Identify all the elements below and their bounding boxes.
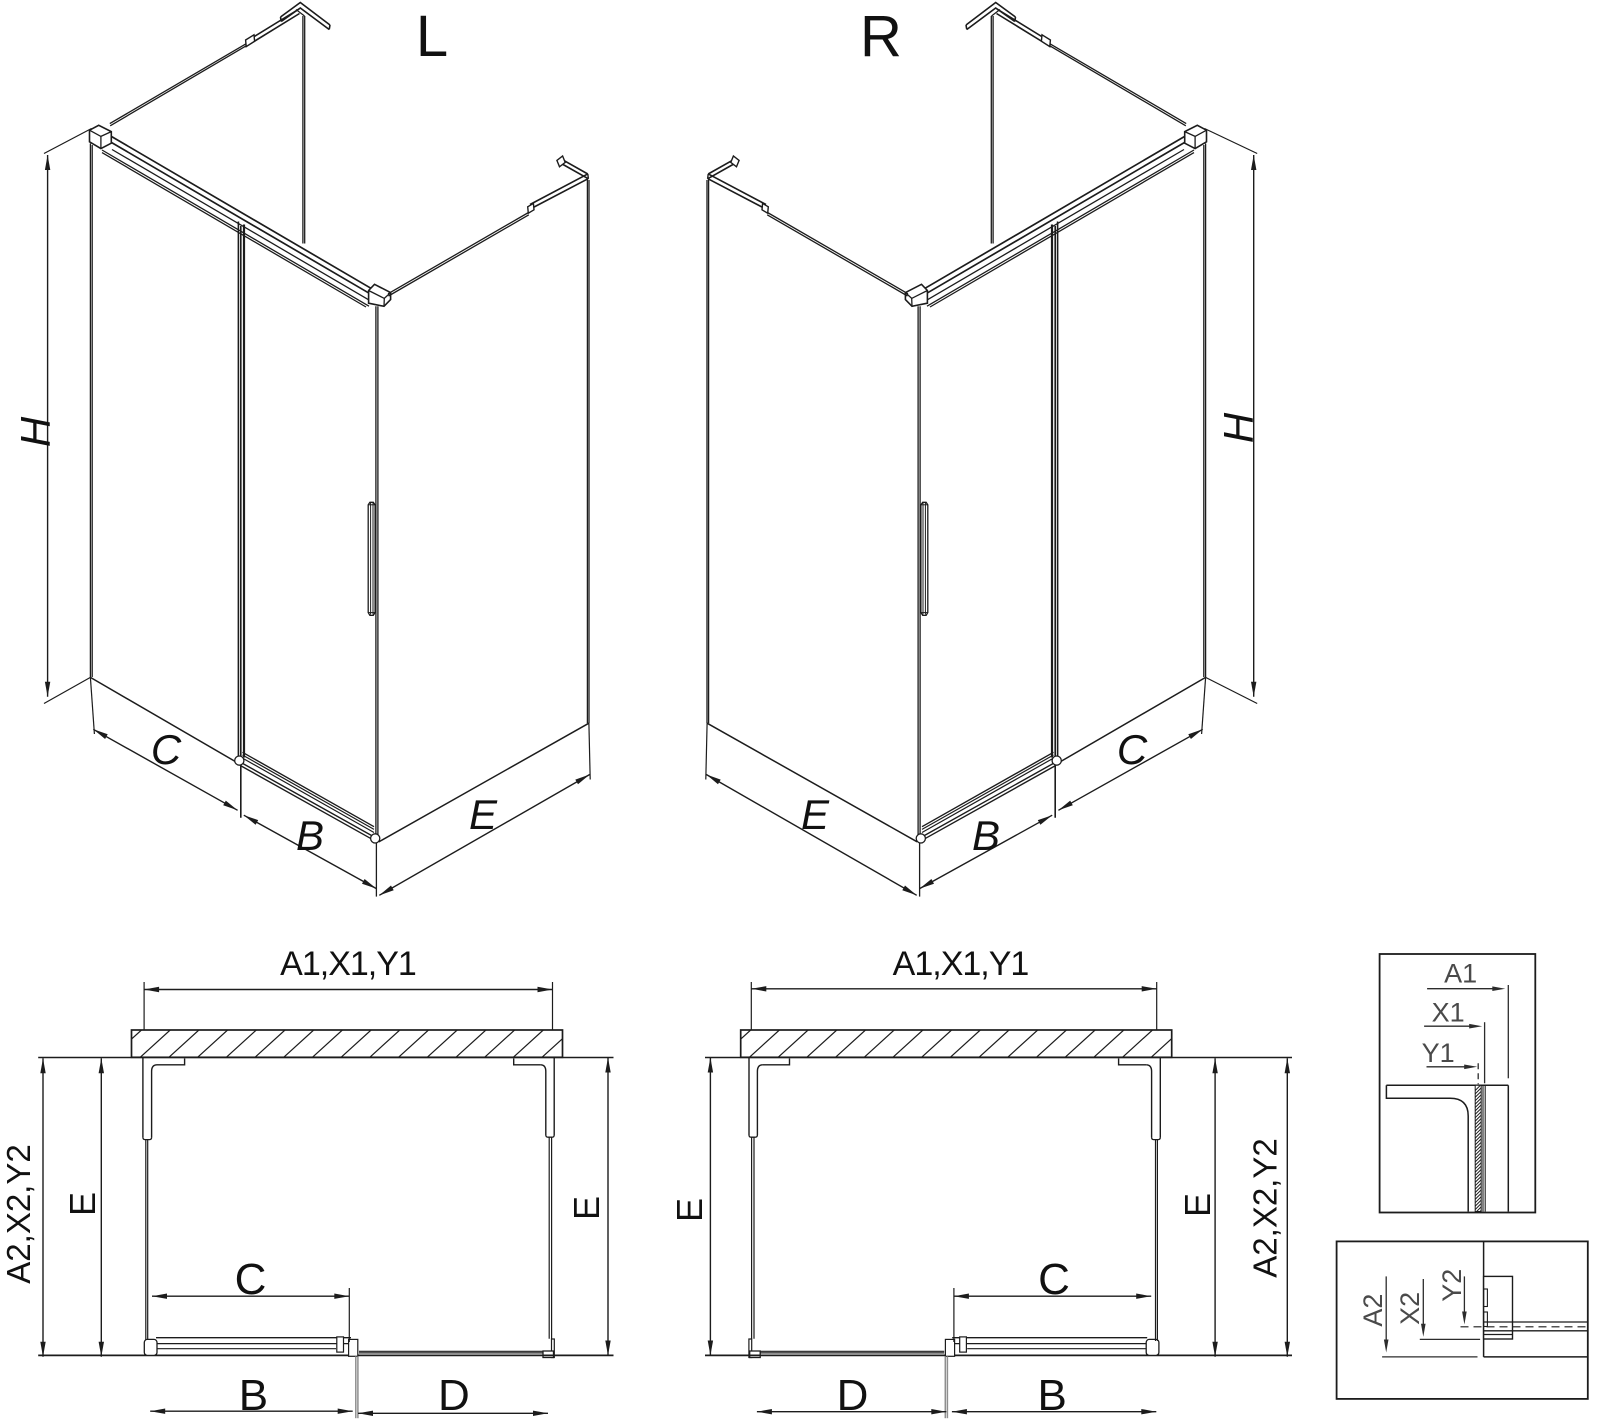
svg-text:Y2: Y2 [1437,1269,1467,1302]
svg-text:D: D [438,1371,470,1420]
svg-text:C: C [235,1255,267,1304]
svg-text:B: B [1038,1371,1067,1420]
svg-text:B: B [296,812,324,859]
svg-text:B: B [972,812,1000,859]
svg-text:E: E [669,1198,710,1222]
svg-text:R: R [860,4,902,69]
svg-text:A2,X2,Y2: A2,X2,Y2 [1247,1138,1284,1277]
svg-text:C: C [1038,1255,1070,1304]
svg-text:H: H [12,416,59,447]
svg-text:D: D [837,1371,869,1420]
svg-text:E: E [469,791,498,838]
svg-text:A1,X1,Y1: A1,X1,Y1 [280,945,416,983]
svg-text:E: E [566,1196,607,1220]
svg-text:C: C [151,726,182,773]
svg-text:C: C [1117,726,1148,773]
svg-text:E: E [62,1192,103,1216]
svg-text:L: L [416,4,448,69]
svg-text:X1: X1 [1432,998,1465,1028]
svg-text:A2: A2 [1358,1294,1388,1327]
svg-text:A2,X2,Y2: A2,X2,Y2 [0,1144,37,1283]
svg-text:E: E [801,791,830,838]
svg-text:Y1: Y1 [1422,1038,1455,1068]
svg-text:A1: A1 [1444,959,1477,989]
svg-text:A1,X1,Y1: A1,X1,Y1 [893,945,1029,983]
svg-text:B: B [239,1371,268,1420]
svg-text:H: H [1215,412,1262,443]
svg-text:E: E [1177,1193,1218,1217]
svg-text:X2: X2 [1395,1292,1425,1325]
